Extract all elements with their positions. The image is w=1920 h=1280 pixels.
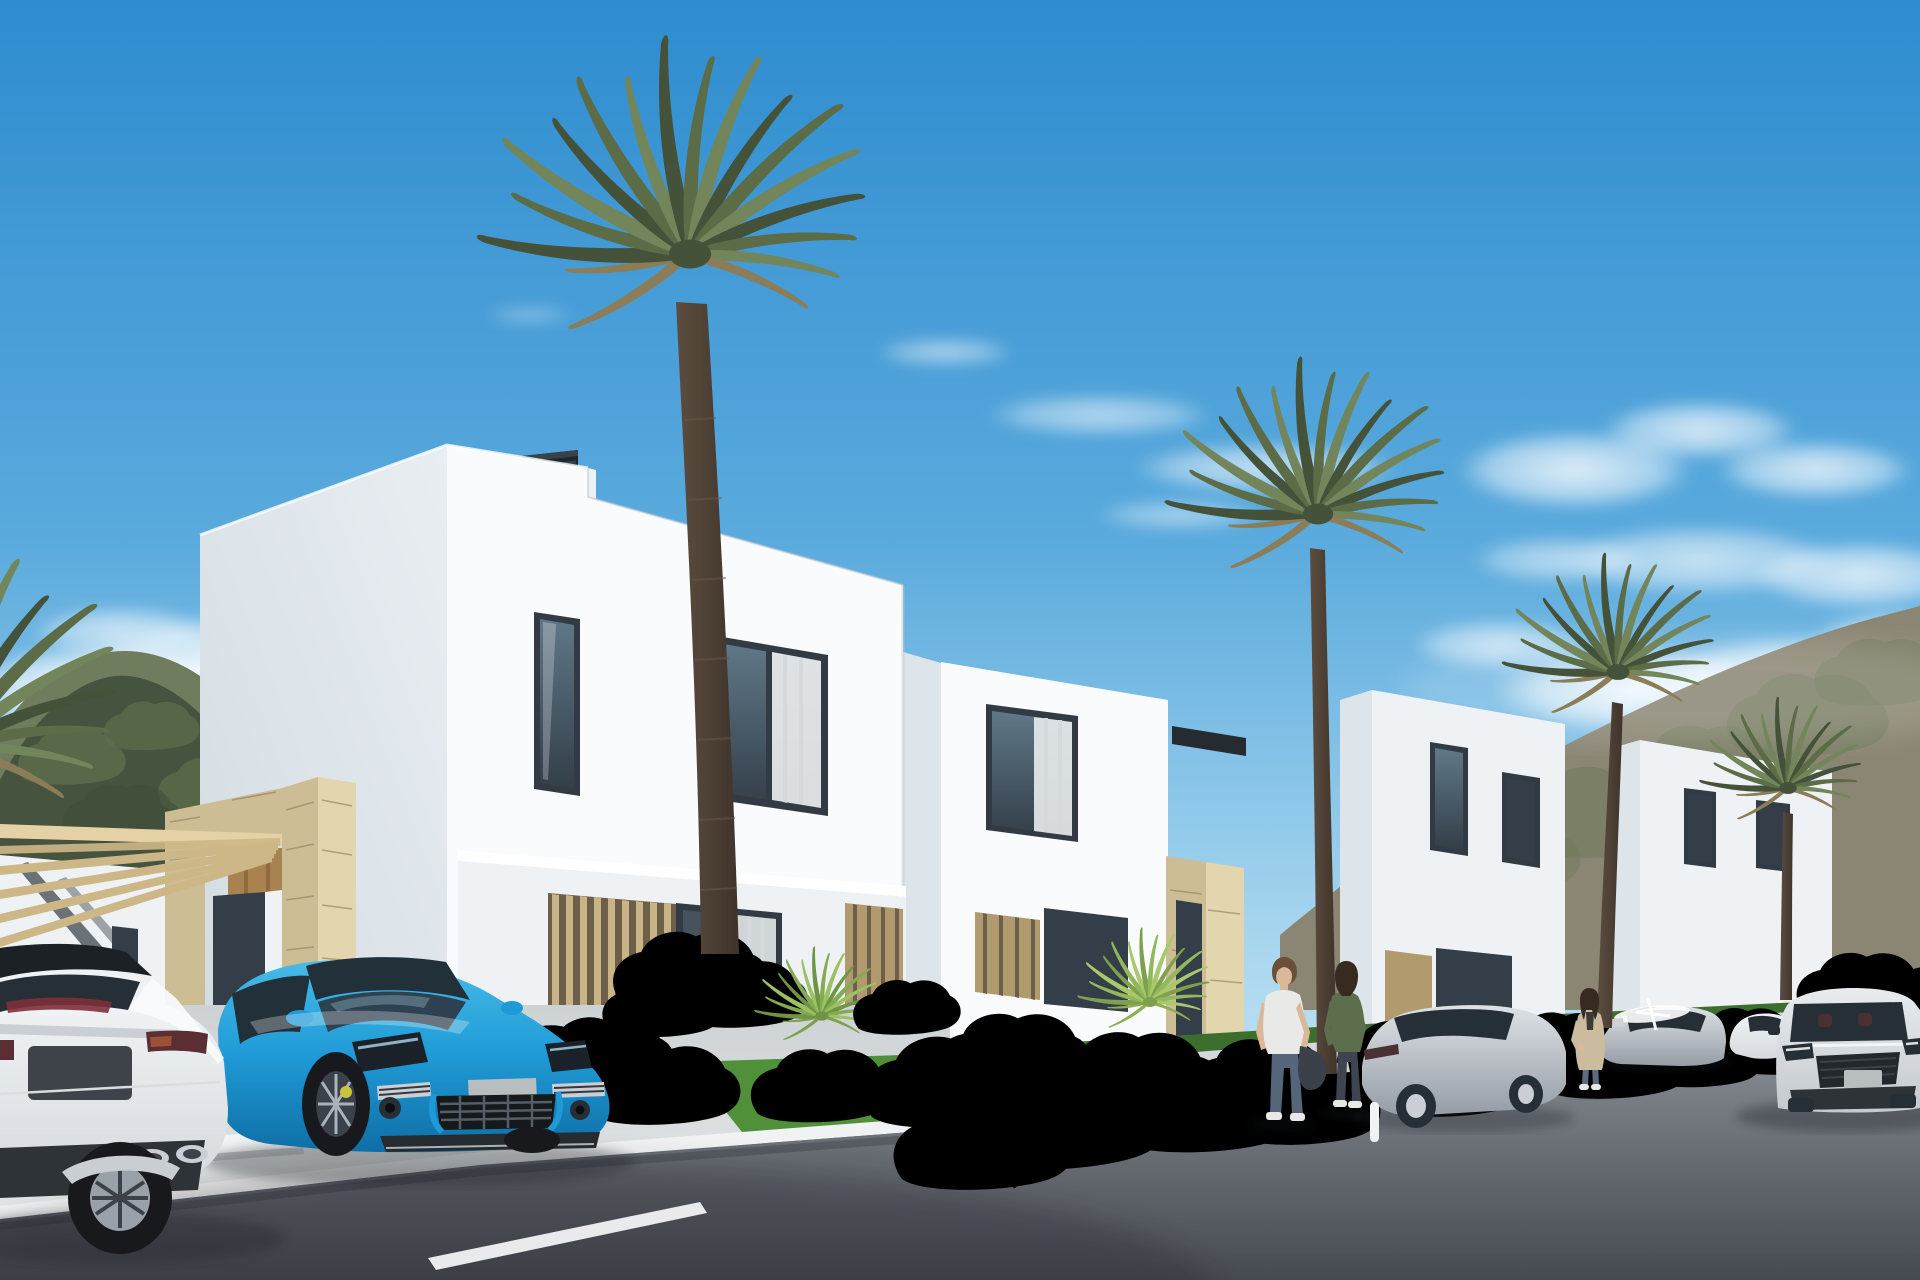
upper-narrow-window [534,612,580,796]
blue-car-front-wheel [302,1052,370,1156]
architectural-render: Sunny 3D architectural rendering of a st… [0,0,1920,1280]
scene-canvas [0,0,1920,1280]
villa-2-upper-window [986,704,1078,842]
blue-car-headlight-right [545,1040,592,1072]
villa-3 [1340,690,1565,1040]
bollard [1370,1102,1379,1142]
